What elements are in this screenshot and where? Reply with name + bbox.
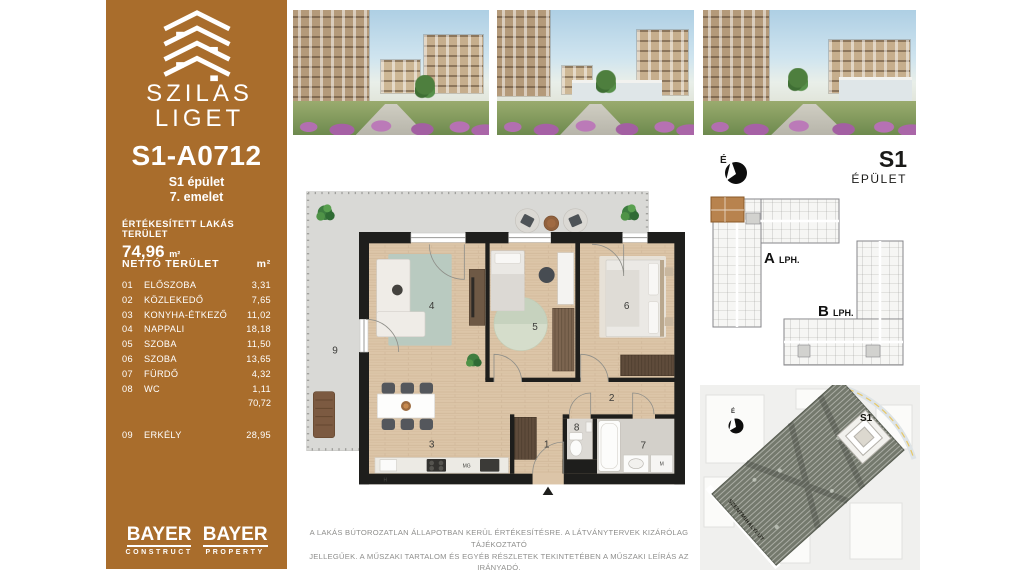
table-row-balcony: 09 ERKÉLY 28,95 [122, 430, 271, 440]
disclaimer-line-2: JELLEGŰEK. A MŰSZAKI TARTALOM ÉS EGYÉB R… [293, 551, 705, 575]
row-number: 03 [122, 310, 144, 320]
render-tree [415, 75, 435, 103]
stairwell-a-label: A [764, 250, 775, 267]
kitchen-sink [380, 460, 397, 471]
row-name: KONYHA-ÉTKEZŐ [144, 310, 247, 320]
table-row: 08 WC 1,11 [122, 384, 271, 394]
row-name: SZOBA [144, 354, 246, 364]
nightstand [665, 317, 674, 326]
row-number: 08 [122, 384, 144, 394]
room-number-7: 7 [641, 440, 647, 451]
render-building [293, 10, 369, 106]
table-row: 07 FÜRDŐ 4,32 [122, 369, 271, 379]
room-number-2: 2 [609, 393, 615, 404]
dining-chair [420, 419, 433, 430]
north-compass-icon: É [714, 150, 754, 190]
table-header-label: NETTÓ TERÜLET [122, 258, 219, 270]
row-area: 3,31 [252, 280, 271, 290]
centerpiece-inner [403, 403, 408, 408]
table-row: 06 SZOBA 13,65 [122, 354, 271, 364]
blanket [606, 270, 639, 327]
stairwell-a-suffix: LPH. [779, 255, 800, 265]
net-area-table: NETTÓ TERÜLET m² 01 ELŐSZOBA 3,31 02 KÖZ… [122, 258, 271, 440]
row-number: 04 [122, 324, 144, 334]
washbasin [629, 459, 644, 469]
render-photo-1 [293, 10, 489, 135]
entrance-opening [533, 474, 564, 485]
render-building [497, 10, 550, 96]
highlighted-unit [711, 197, 744, 222]
brand-name: SZILAS LIGET [106, 82, 290, 132]
row-area: 4,32 [252, 369, 271, 379]
pillow [495, 253, 520, 263]
row-number: 05 [122, 339, 144, 349]
row-number: 02 [122, 295, 144, 305]
table-header: NETTÓ TERÜLET m² [122, 258, 271, 270]
row-name: ELŐSZOBA [144, 280, 252, 290]
room-number-6: 6 [624, 301, 630, 312]
render-photo-2 [497, 10, 694, 135]
render-flowers [293, 115, 489, 135]
unit-subtitle: S1 épület 7. emelet [106, 175, 287, 205]
site-map: S1 É SZENTMIHÁLYI ÚT [700, 385, 920, 570]
entrance-arrow-icon [543, 487, 554, 495]
logo-division: PROPERTY [206, 549, 265, 556]
burner [439, 466, 444, 471]
table-row: 04 NAPPALI 18,18 [122, 324, 271, 334]
row-name: FÜRDŐ [144, 369, 252, 379]
szilas-liget-logo-icon [106, 9, 287, 83]
render-flowers [497, 115, 694, 135]
sold-area-label: ÉRTÉKESÍTETT LAKÁS TERÜLET [122, 219, 273, 239]
row-number: 01 [122, 280, 144, 290]
site-map-s1-label: S1 [860, 413, 873, 424]
nightstand [665, 267, 674, 276]
logo-division: CONSTRUCT [125, 549, 192, 556]
blanket [491, 274, 524, 311]
row-number: 07 [122, 369, 144, 379]
balcony-chair [515, 209, 539, 233]
table-row: 03 KONYHA-ÉTKEZŐ 11,02 [122, 310, 271, 320]
dining-chair [382, 419, 395, 430]
room-number-8: 8 [574, 423, 580, 434]
dining-chair [382, 383, 395, 394]
row-name: SZOBA [144, 339, 247, 349]
apartment-floor-plan: 1 2 3 4 5 6 7 8 9 H MG M [280, 160, 700, 515]
toilet-tank [569, 433, 582, 440]
toilet [570, 440, 582, 456]
fridge-label: H [384, 478, 388, 484]
row-name: KÖZLEKEDŐ [144, 295, 252, 305]
pillow [648, 263, 658, 295]
burner [429, 461, 434, 466]
balcony-chair [563, 209, 587, 233]
row-area: 13,65 [246, 354, 271, 364]
cooktop [427, 459, 446, 472]
sidebar: SZILAS LIGET S1-A0712 S1 épület 7. emele… [106, 0, 287, 569]
row-area: 18,18 [246, 324, 271, 334]
washer-label: M [660, 462, 664, 468]
room-number-1: 1 [544, 439, 550, 450]
render-flowers [703, 115, 916, 135]
dining-chair [401, 419, 414, 430]
net-subtotal: 70,72 [122, 398, 271, 408]
disclaimer: A LAKÁS BÚTOROZATLAN ÁLLAPOTBAN KERÜL ÉR… [293, 527, 705, 574]
bayer-property-logo: BAYER PROPERTY [203, 525, 268, 557]
tv [471, 277, 474, 317]
wardrobe-slats [621, 355, 674, 376]
logo-wordmark: BAYER [203, 525, 268, 547]
dining-chair [420, 383, 433, 394]
sold-area: ÉRTÉKESÍTETT LAKÁS TERÜLET 74,96 m² [122, 219, 273, 262]
balcony-table-top [547, 219, 556, 228]
north-label: É [720, 153, 727, 166]
render-photo-3 [703, 10, 916, 135]
oven [480, 459, 499, 472]
lounge-chair [313, 392, 334, 438]
hand-basin [586, 422, 592, 432]
row-area: 7,65 [252, 295, 271, 305]
table-row: 01 ELŐSZOBA 3,31 [122, 280, 271, 290]
key-plan-title: S1 ÉPÜLET [795, 148, 907, 186]
dining-chair [401, 383, 414, 394]
render-tree [596, 70, 616, 98]
building-word: ÉPÜLET [795, 172, 907, 186]
building-key-plan: A LPH. B LPH. [700, 193, 920, 381]
brochure-page: SZILAS LIGET S1-A0712 S1 épület 7. emele… [0, 0, 1024, 576]
row-name: ERKÉLY [144, 430, 246, 440]
map-north-label: É [731, 407, 735, 415]
wing-b [784, 241, 903, 365]
bayer-construct-logo: BAYER CONSTRUCT [125, 525, 192, 557]
table-row: 02 KÖZLEKEDŐ 7,65 [122, 295, 271, 305]
wardrobe-slats [553, 308, 574, 371]
desk [558, 253, 574, 305]
render-tree [788, 68, 808, 96]
burner [439, 461, 444, 466]
table-header-unit: m² [257, 258, 271, 270]
room-number-3: 3 [429, 439, 435, 450]
bathtub [598, 421, 620, 472]
row-area: 28,95 [246, 430, 271, 440]
pillow [648, 302, 658, 334]
desk-chair [539, 267, 555, 283]
hall-furniture [514, 417, 536, 459]
sofa-throw [392, 285, 403, 296]
brand-line-2: LIGET [109, 107, 290, 132]
row-area: 11,02 [247, 310, 271, 320]
row-number: 06 [122, 354, 144, 364]
stairwell-b-label: B [818, 303, 829, 320]
room-number-4: 4 [429, 301, 435, 312]
stairwell-labels: A LPH. B LPH. [764, 250, 854, 320]
disclaimer-line-1: A LAKÁS BÚTOROZATLAN ÁLLAPOTBAN KERÜL ÉR… [293, 527, 705, 551]
room-number-5: 5 [532, 322, 538, 333]
row-name: WC [144, 384, 252, 394]
table-row: 05 SZOBA 11,50 [122, 339, 271, 349]
stairwell-b-suffix: LPH. [833, 308, 854, 318]
row-area: 1,11 [252, 384, 271, 394]
unit-id: S1-A0712 [106, 140, 287, 172]
developer-logos: BAYER CONSTRUCT BAYER PROPERTY [106, 525, 287, 557]
building-name: S1 épület [106, 175, 287, 190]
headboard [660, 260, 664, 337]
row-name: NAPPALI [144, 324, 246, 334]
dishwasher-label: MG [463, 463, 471, 469]
brand-line-1: SZILAS [109, 82, 290, 107]
row-area: 11,50 [247, 339, 271, 349]
burner [429, 466, 434, 471]
render-building [703, 10, 769, 111]
floor-name: 7. emelet [106, 190, 287, 205]
row-number: 09 [122, 430, 144, 440]
room-number-9: 9 [332, 345, 338, 356]
building-code: S1 [795, 148, 907, 171]
wardrobe-slats [514, 417, 536, 459]
logo-wordmark: BAYER [127, 525, 192, 547]
